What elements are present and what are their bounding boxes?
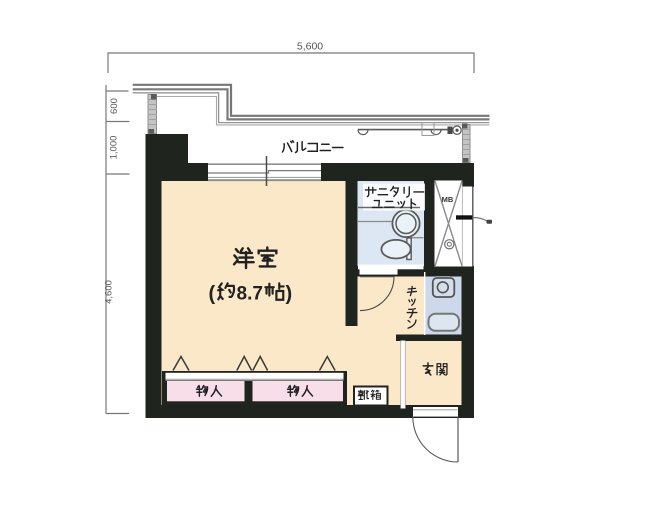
- svg-text:1,000: 1,000: [109, 136, 120, 160]
- svg-text:4,600: 4,600: [104, 280, 115, 304]
- svg-text:5,600: 5,600: [297, 41, 323, 53]
- svg-text:600: 600: [109, 98, 120, 114]
- svg-text:8.7: 8.7: [237, 284, 263, 305]
- svg-text:): ): [286, 283, 293, 305]
- svg-text:(: (: [209, 283, 216, 305]
- svg-text:MB: MB: [442, 195, 454, 204]
